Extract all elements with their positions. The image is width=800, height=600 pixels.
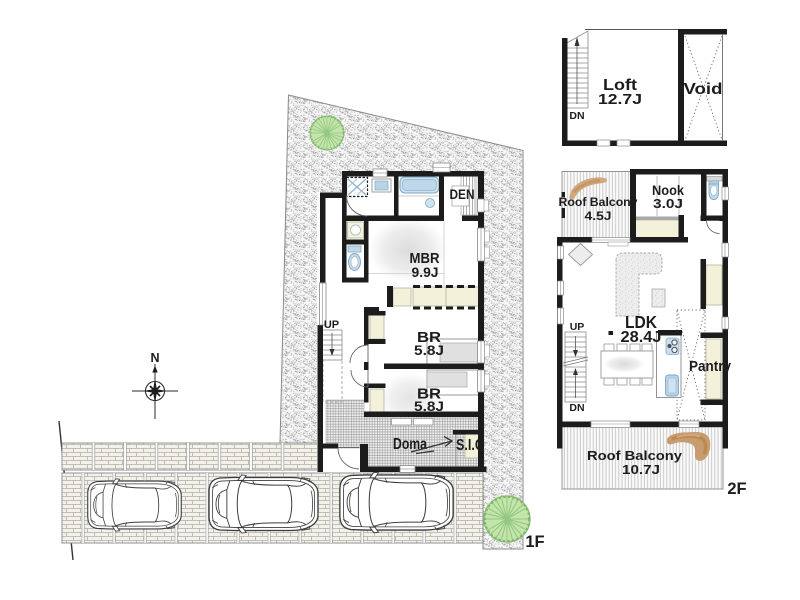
svg-text:DN: DN bbox=[569, 402, 584, 414]
svg-text:5.8J: 5.8J bbox=[414, 398, 444, 414]
svg-text:3.0J: 3.0J bbox=[653, 196, 683, 211]
svg-text:12.7J: 12.7J bbox=[598, 91, 642, 108]
svg-text:N: N bbox=[150, 351, 159, 365]
svg-text:4.5J: 4.5J bbox=[585, 211, 612, 223]
svg-text:DN: DN bbox=[569, 110, 584, 122]
svg-text:UP: UP bbox=[570, 321, 585, 333]
svg-text:DEN: DEN bbox=[450, 187, 475, 202]
svg-text:5.8J: 5.8J bbox=[414, 342, 444, 358]
svg-text:UP: UP bbox=[324, 319, 339, 331]
svg-text:9.9J: 9.9J bbox=[412, 264, 439, 280]
svg-text:S.I.C: S.I.C bbox=[456, 437, 484, 454]
svg-text:Roof Balcony: Roof Balcony bbox=[559, 197, 639, 209]
svg-text:Pantry: Pantry bbox=[689, 359, 731, 375]
svg-text:Void: Void bbox=[684, 81, 723, 98]
svg-text:28.4J: 28.4J bbox=[621, 329, 662, 346]
svg-text:2F: 2F bbox=[727, 480, 746, 498]
svg-text:Roof Balcony: Roof Balcony bbox=[587, 448, 683, 463]
svg-text:Doma: Doma bbox=[393, 436, 427, 453]
svg-text:10.7J: 10.7J bbox=[622, 462, 660, 477]
svg-text:1F: 1F bbox=[525, 533, 544, 551]
